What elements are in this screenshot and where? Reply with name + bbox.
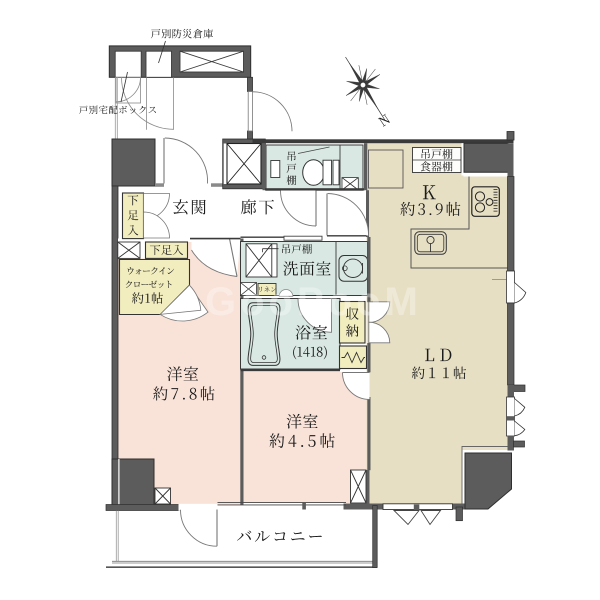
svg-text:GooPooM: GooPooM — [205, 280, 422, 324]
svg-text:oo: oo — [40, 270, 95, 314]
